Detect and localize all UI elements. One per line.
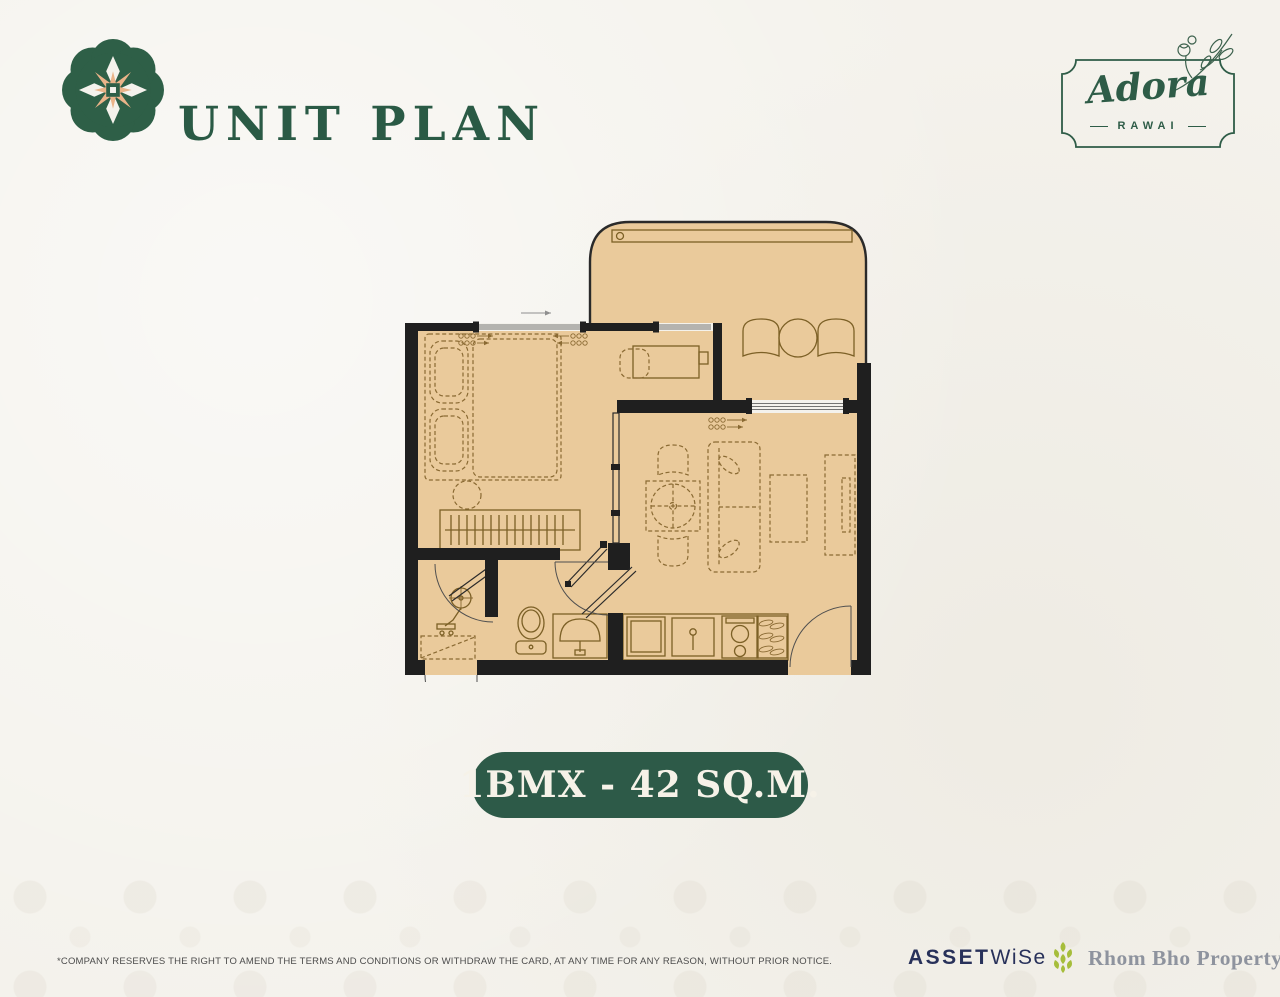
living-balcony-window [746, 398, 849, 414]
direction-arrow-icon [521, 311, 551, 316]
assetwise-wordmark-light: WiSe [991, 946, 1047, 969]
badge-location: RAWAI [1058, 120, 1238, 132]
desk-window [653, 322, 713, 333]
badge-dash-left [1090, 126, 1108, 127]
assetwise-medallion-icon [62, 33, 164, 147]
unit-floor-plan [405, 212, 875, 682]
partner-wordmark: Rhom Bho Property [1088, 946, 1280, 971]
bottom-damask-pattern [0, 867, 1280, 997]
assetwise-wordmark: ASSETWiSe [908, 946, 1047, 970]
disclaimer-text: *COMPANY RESERVES THE RIGHT TO AMEND THE… [57, 956, 832, 967]
badge-dash-right [1188, 126, 1206, 127]
assetwise-wordmark-bold: ASSET [908, 946, 991, 969]
bedroom-window [473, 322, 586, 333]
unit-label-text: 1BMX - 42 SQ.M. [459, 764, 820, 806]
rhombho-leaf-icon [1046, 940, 1080, 974]
page-title: UNIT PLAN [178, 97, 546, 152]
badge-location-text: RAWAI [1117, 120, 1178, 132]
unit-label-pill: 1BMX - 42 SQ.M. [472, 752, 808, 818]
utility-door-icon [425, 675, 477, 682]
adora-rawai-badge: Adora RAWAI [1058, 50, 1240, 146]
